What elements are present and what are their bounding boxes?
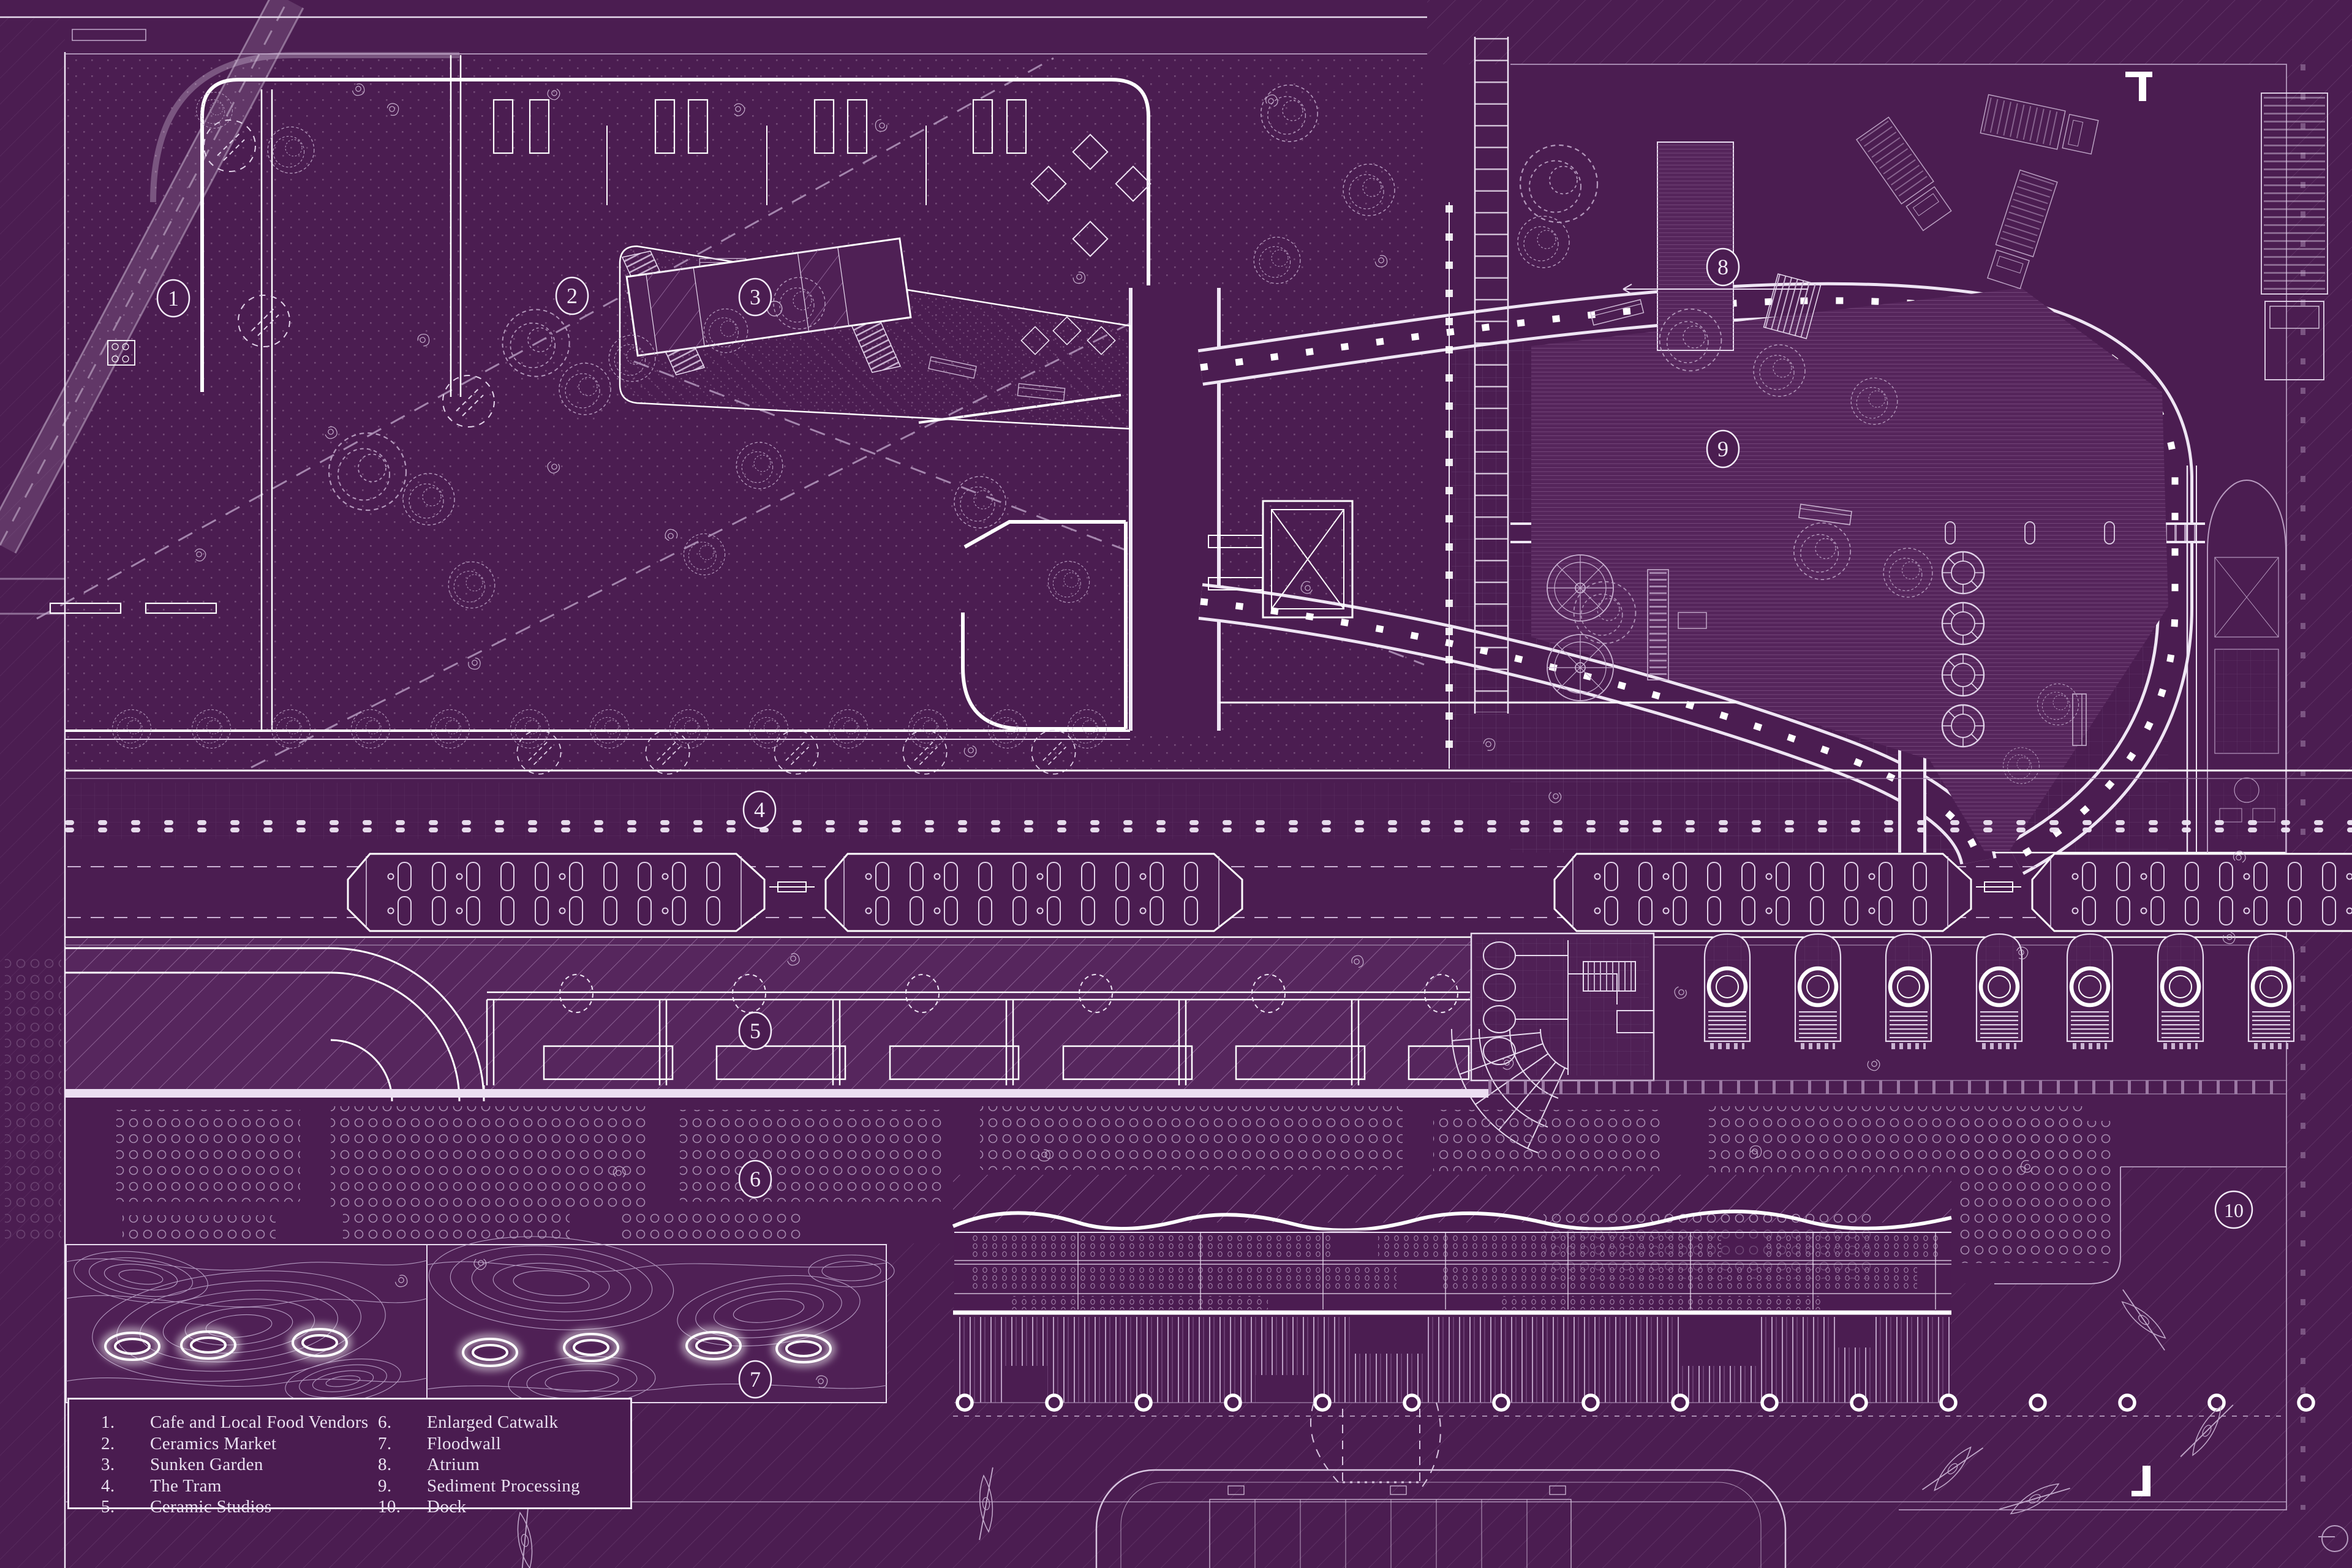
plan-marker-2: 2 <box>556 277 588 314</box>
plan-marker-1: 1 <box>157 280 189 317</box>
legend-item-number: 5. <box>101 1496 150 1518</box>
legend-item-label: Cafe and Local Food Vendors <box>150 1412 369 1432</box>
legend-item-number: 10. <box>378 1496 427 1518</box>
legend-item: 10.Dock <box>378 1496 580 1518</box>
plan-marker-8: 8 <box>1707 249 1739 285</box>
legend-box: 1.Cafe and Local Food Vendors 2.Ceramics… <box>67 1398 632 1509</box>
waterfront-building <box>953 1212 1951 1403</box>
plan-marker-7: 7 <box>739 1361 771 1398</box>
legend-item-number: 3. <box>101 1454 150 1476</box>
marker-number: 6 <box>750 1167 761 1191</box>
legend-item: 5.Ceramic Studios <box>101 1496 378 1518</box>
marker-number: 2 <box>567 284 578 308</box>
plan-marker-4: 4 <box>744 791 775 828</box>
legend-item-label: Atrium <box>427 1455 480 1474</box>
marker-number: 3 <box>750 285 761 309</box>
legend-column-1: 1.Cafe and Local Food Vendors 2.Ceramics… <box>101 1412 378 1507</box>
plan-marker-6: 6 <box>739 1161 771 1197</box>
marker-number: 10 <box>2224 1199 2244 1221</box>
legend-item: 4.The Tram <box>101 1476 378 1497</box>
legend-item-label: The Tram <box>150 1476 222 1496</box>
legend-item-number: 9. <box>378 1476 427 1497</box>
legend-item: 8.Atrium <box>378 1454 580 1476</box>
legend-item: 7.Floodwall <box>378 1433 580 1455</box>
plan-marker-9: 9 <box>1707 431 1739 467</box>
legend-column-2: 6.Enlarged Catwalk 7.Floodwall 8.Atrium … <box>378 1412 580 1507</box>
marker-number: 4 <box>754 797 765 822</box>
marker-number: 7 <box>750 1367 761 1392</box>
legend-item-number: 8. <box>378 1454 427 1476</box>
legend-item-label: Floodwall <box>427 1434 501 1453</box>
plan-marker-3: 3 <box>739 279 771 315</box>
legend-item: 9.Sediment Processing <box>378 1476 580 1497</box>
legend-item-number: 1. <box>101 1412 150 1433</box>
legend-item-number: 4. <box>101 1476 150 1497</box>
site-plan-drawing: 1 2 3 4 5 6 7 8 9 10 1.Cafe and Local Fo… <box>0 0 2352 1568</box>
legend-item-number: 6. <box>378 1412 427 1433</box>
legend-item-label: Sunken Garden <box>150 1455 263 1474</box>
legend-item-number: 2. <box>101 1433 150 1455</box>
plan-marker-10: 10 <box>2215 1191 2252 1228</box>
legend-item: 6.Enlarged Catwalk <box>378 1412 580 1433</box>
legend-item: 3.Sunken Garden <box>101 1454 378 1476</box>
legend-item-label: Enlarged Catwalk <box>427 1412 558 1432</box>
marker-number: 5 <box>750 1019 761 1043</box>
marker-number: 1 <box>168 286 179 311</box>
legend-item-label: Ceramic Studios <box>150 1497 272 1517</box>
legend-item: 2.Ceramics Market <box>101 1433 378 1455</box>
louver-roof <box>954 1317 1951 1403</box>
plan-marker-5: 5 <box>739 1012 771 1049</box>
plan-linework: 1 2 3 4 5 6 7 8 9 10 <box>0 0 2352 1568</box>
marker-number: 9 <box>1717 437 1728 461</box>
marker-number: 8 <box>1717 255 1728 279</box>
legend-item-label: Sediment Processing <box>427 1476 580 1496</box>
legend-item: 1.Cafe and Local Food Vendors <box>101 1412 378 1433</box>
legend-item-label: Dock <box>427 1497 466 1517</box>
legend-item-label: Ceramics Market <box>150 1434 277 1453</box>
legend-item-number: 7. <box>378 1433 427 1455</box>
